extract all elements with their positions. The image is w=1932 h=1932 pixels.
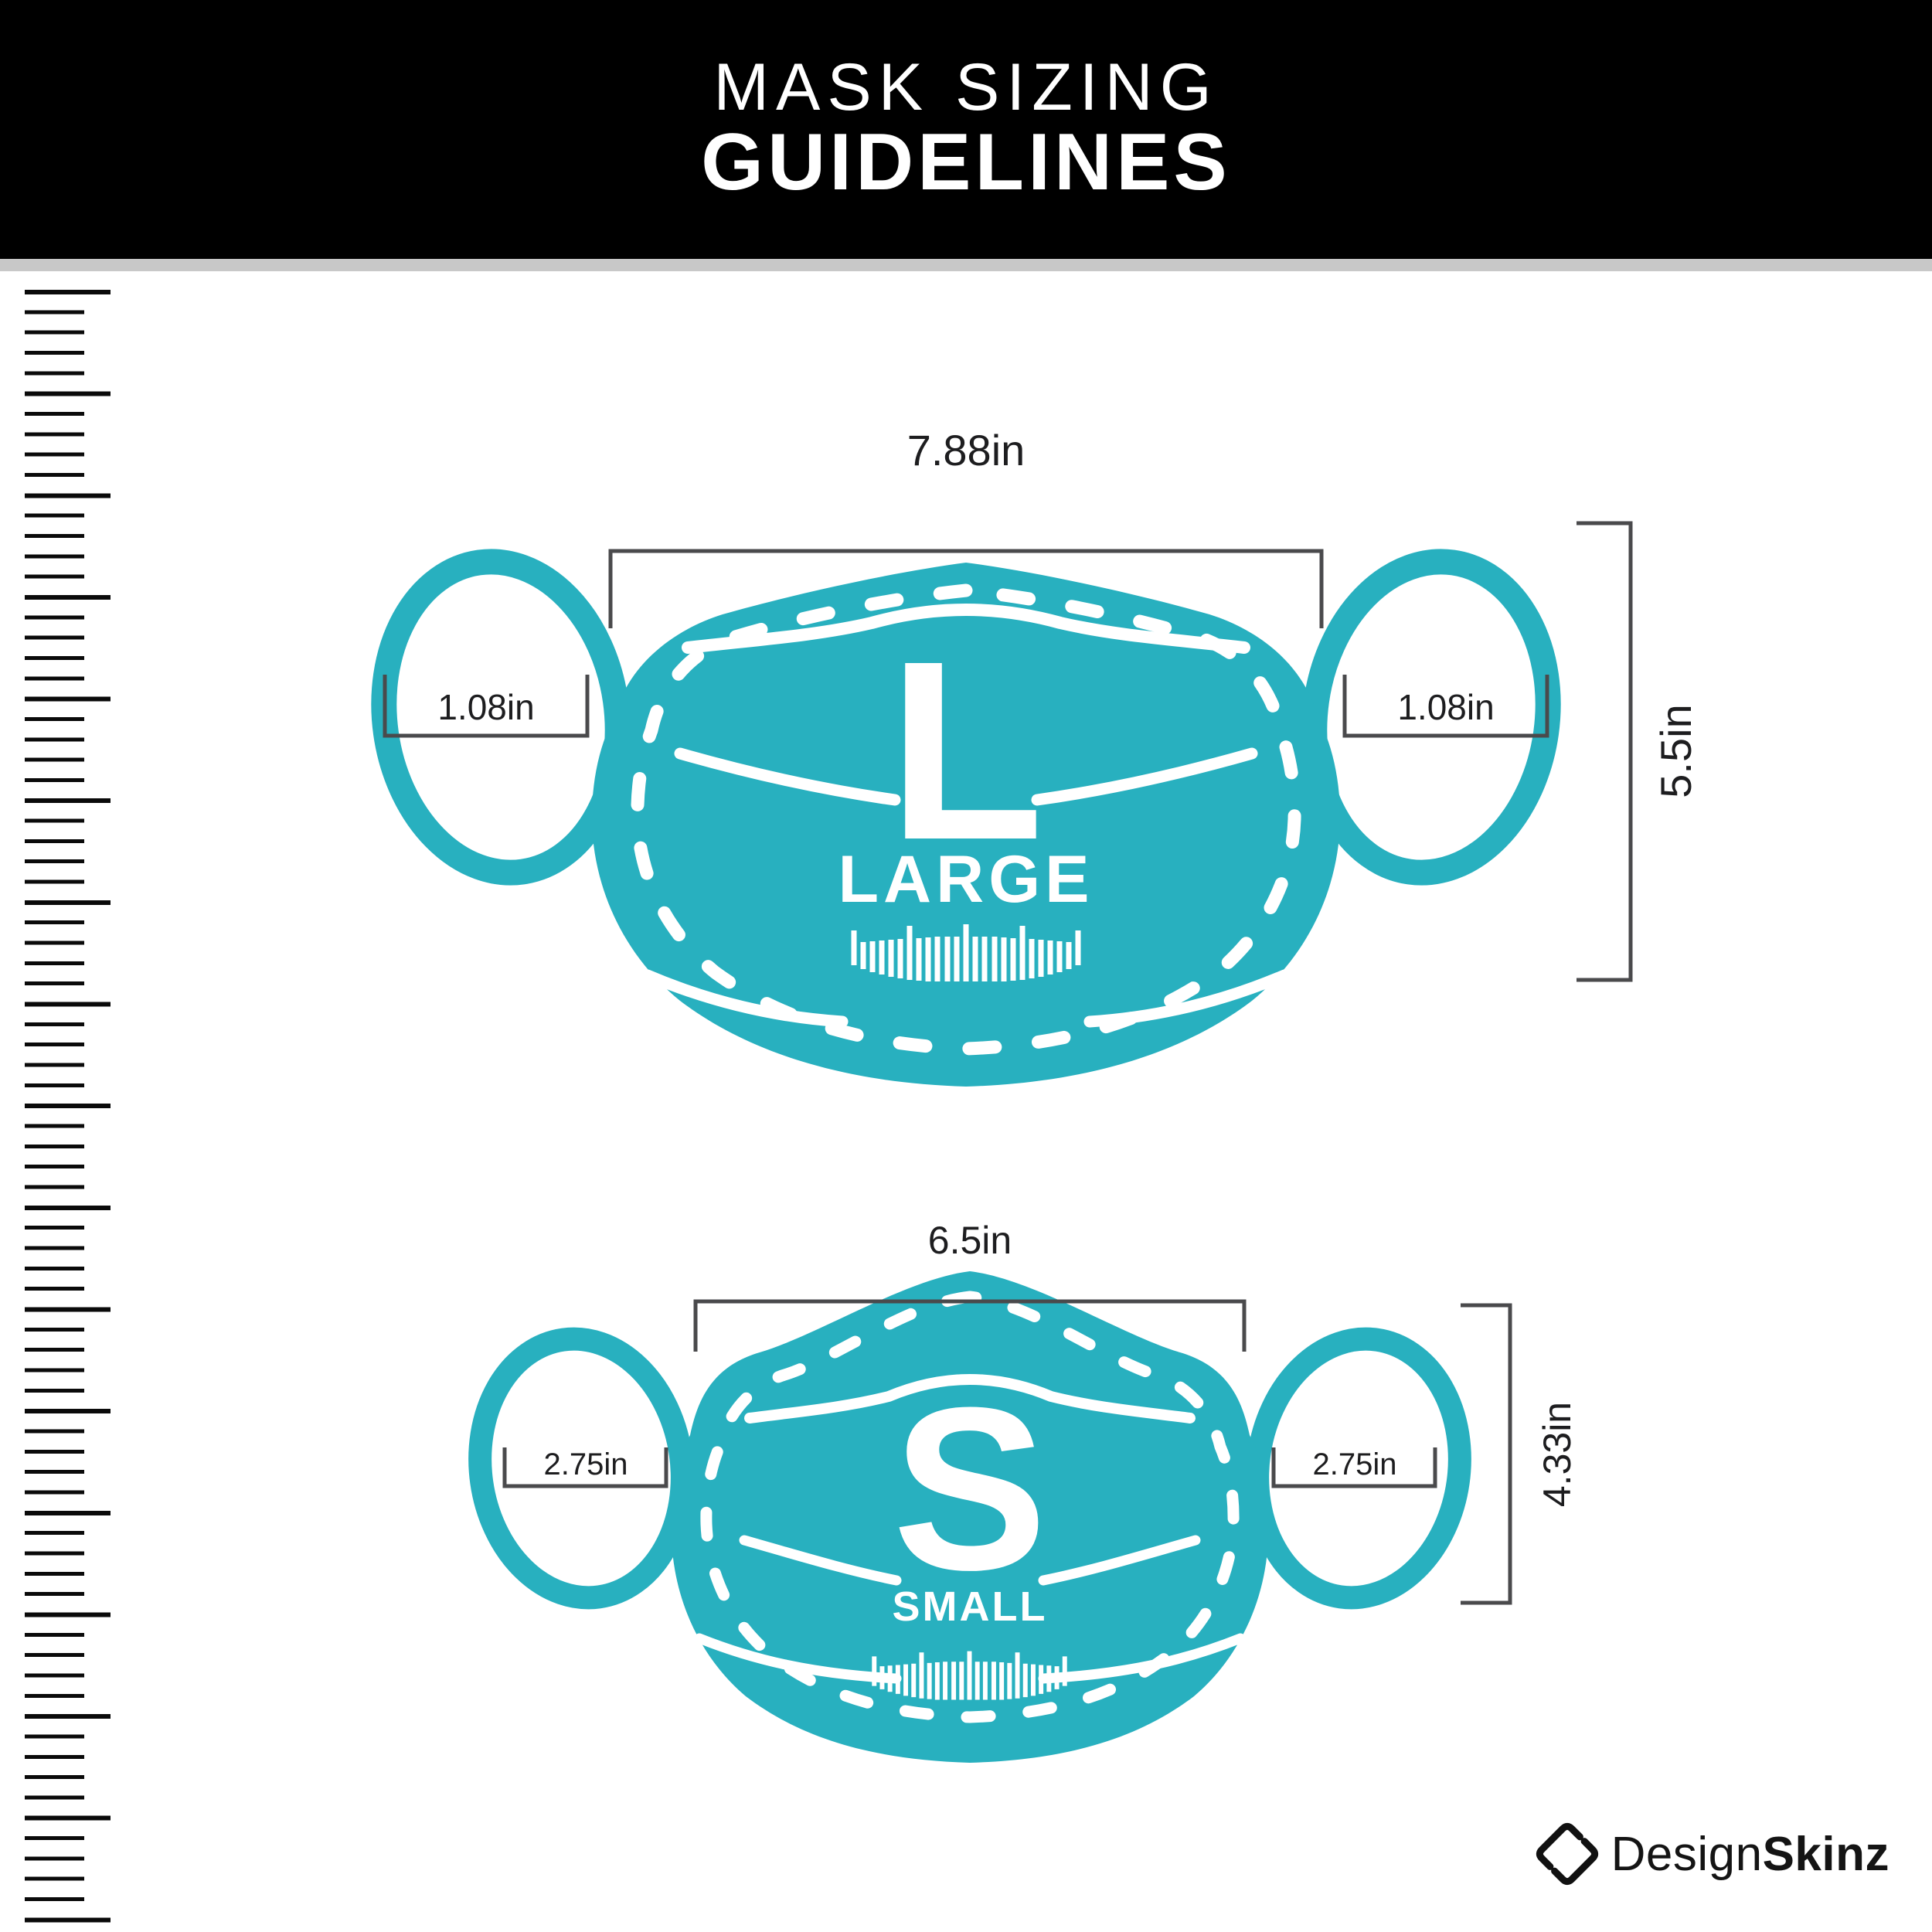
small-left-ear-label: 2.75in xyxy=(544,1447,628,1481)
large-height-bracket xyxy=(1577,523,1631,980)
large-right-ear-label: 1.08in xyxy=(1397,687,1494,727)
large-left-ear-label: 1.08in xyxy=(437,687,534,727)
brand-icon xyxy=(1536,1821,1599,1887)
large-width-label: 7.88in xyxy=(907,426,1026,474)
small-right-ear-label: 2.75in xyxy=(1313,1447,1397,1481)
large-mask: L LARGE 7.88in 1.08in 1.08in 5.5in xyxy=(364,426,1700,1087)
large-mask-size-word: LARGE xyxy=(838,842,1094,917)
infographic-canvas: MASK SIZING GUIDELINES L xyxy=(0,0,1932,1932)
large-height-label: 5.5in xyxy=(1651,704,1700,798)
small-mask-letter: S xyxy=(893,1359,1047,1618)
small-height-label: 4.33in xyxy=(1536,1402,1579,1507)
brand-name-regular: Design xyxy=(1611,1828,1763,1881)
brand-name: DesignSkinz xyxy=(1611,1827,1889,1882)
mask-diagram: L LARGE 7.88in 1.08in 1.08in 5.5in xyxy=(0,0,1932,1932)
small-width-label: 6.5in xyxy=(928,1219,1012,1262)
small-mask-size-word: SMALL xyxy=(893,1583,1048,1630)
brand-name-bold: Skinz xyxy=(1763,1828,1889,1881)
brand-logo: DesignSkinz xyxy=(1536,1821,1889,1887)
small-mask: S SMALL 6.5in 2.75in 2.75in 4.33in xyxy=(464,1219,1579,1763)
